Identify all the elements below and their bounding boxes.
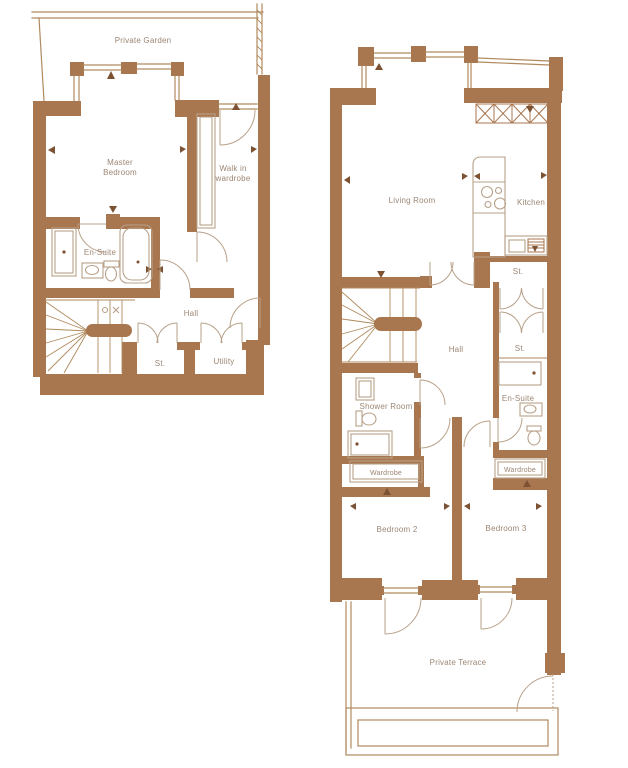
bedroom-2: Bedroom 2	[350, 503, 450, 534]
room-label-en-suite: En-Suite	[84, 248, 117, 257]
wall-marker-icon	[474, 173, 480, 180]
room-label-storage-upper: St.	[513, 267, 523, 276]
private-terrace: Private Terrace	[346, 598, 558, 755]
door-arc	[385, 598, 421, 634]
sink-icon	[356, 378, 374, 400]
door-arc	[420, 380, 445, 405]
room-label-private-garden: Private Garden	[115, 36, 172, 45]
room-label-living-room: Living Room	[389, 196, 436, 205]
room-label-master-bedroom: Master	[107, 158, 133, 167]
left-plan: Private Garden	[32, 4, 270, 395]
door-arc	[498, 418, 522, 442]
toilet-icon	[356, 411, 376, 426]
room-label-hall: Hall	[449, 345, 464, 354]
door-arc	[160, 260, 190, 290]
room-label-utility: Utility	[214, 357, 235, 366]
room-label-walk-in-wardrobe: Walk in	[219, 164, 246, 173]
bathtub-icon	[120, 225, 152, 283]
wall-marker-icon	[526, 106, 534, 113]
gate-door-arc	[517, 674, 553, 712]
wall-marker-icon	[180, 146, 186, 153]
room-label-wardrobe-right: Wardrobe	[504, 467, 536, 474]
room-label-private-terrace: Private Terrace	[430, 658, 487, 667]
svg-text:wardrobe: wardrobe	[215, 174, 251, 183]
room-label-en-suite: En-Suite	[502, 394, 535, 403]
toilet-icon	[527, 426, 541, 445]
wall-marker-icon	[536, 503, 542, 510]
sink-unit-icon	[505, 236, 547, 255]
room-label-shower-room: Shower Room	[360, 402, 413, 411]
shower-room: Shower Room	[348, 378, 413, 458]
double-door-arc	[138, 323, 177, 343]
living-room: Living Room	[344, 173, 474, 285]
wall-marker-icon	[377, 271, 385, 278]
double-door-arc	[500, 288, 543, 309]
wall-marker-icon	[462, 173, 468, 180]
double-door-arc	[430, 262, 474, 285]
bedroom-3: Bedroom 3	[464, 503, 542, 533]
shower-icon	[52, 228, 76, 276]
door-arc	[230, 298, 260, 328]
storage-middle: St.	[500, 312, 543, 353]
en-suite: En-Suite	[498, 362, 542, 445]
hob-icon	[482, 187, 506, 210]
door-arc	[220, 110, 255, 145]
room-label-bedroom-2: Bedroom 2	[377, 525, 418, 534]
right-plan: Living Room	[330, 46, 565, 755]
private-garden: Private Garden	[32, 4, 263, 101]
door-arc	[464, 421, 490, 447]
wall-marker-icon	[251, 146, 257, 153]
floor-plan-drawing: Private Garden	[0, 0, 628, 768]
wall-marker-icon	[350, 503, 356, 510]
door-arc	[197, 232, 227, 262]
wall-marker-icon	[109, 206, 117, 213]
staircase-icon	[46, 300, 135, 373]
double-door-arc	[201, 323, 242, 343]
shower-icon	[499, 362, 541, 385]
wall-marker-icon	[48, 146, 55, 154]
room-label-wardrobe-left: Wardrobe	[370, 470, 402, 477]
wall-marker-icon	[444, 503, 450, 510]
wall-marker-icon	[464, 503, 470, 510]
door-arc	[481, 598, 512, 629]
double-door-arc	[500, 312, 543, 333]
shower-icon	[348, 431, 392, 458]
right-plan-walls	[330, 57, 565, 675]
svg-text:Bedroom: Bedroom	[103, 168, 137, 177]
room-label-hall: Hall	[184, 309, 199, 318]
bay-window	[358, 46, 549, 88]
kitchen: Kitchen	[473, 157, 547, 257]
toilet-icon	[104, 261, 119, 281]
handrail	[86, 324, 132, 337]
planter	[346, 708, 558, 755]
handrail	[374, 317, 422, 331]
window-marker-icon	[375, 63, 383, 70]
room-label-storage-middle: St.	[515, 344, 525, 353]
window-marker-icon	[107, 71, 115, 79]
wall-marker-icon	[344, 176, 350, 184]
wall-marker-icon	[541, 172, 547, 179]
room-label-storage: St.	[155, 359, 165, 368]
door-arc	[420, 418, 450, 448]
storage-upper: St.	[500, 267, 543, 309]
sink-icon	[82, 263, 103, 278]
room-label-kitchen: Kitchen	[517, 198, 545, 207]
room-label-bedroom-3: Bedroom 3	[486, 524, 527, 533]
garden-fence	[257, 4, 262, 74]
bay-window	[70, 62, 184, 101]
sink-icon	[520, 403, 542, 416]
skylight-hatch	[476, 104, 548, 123]
